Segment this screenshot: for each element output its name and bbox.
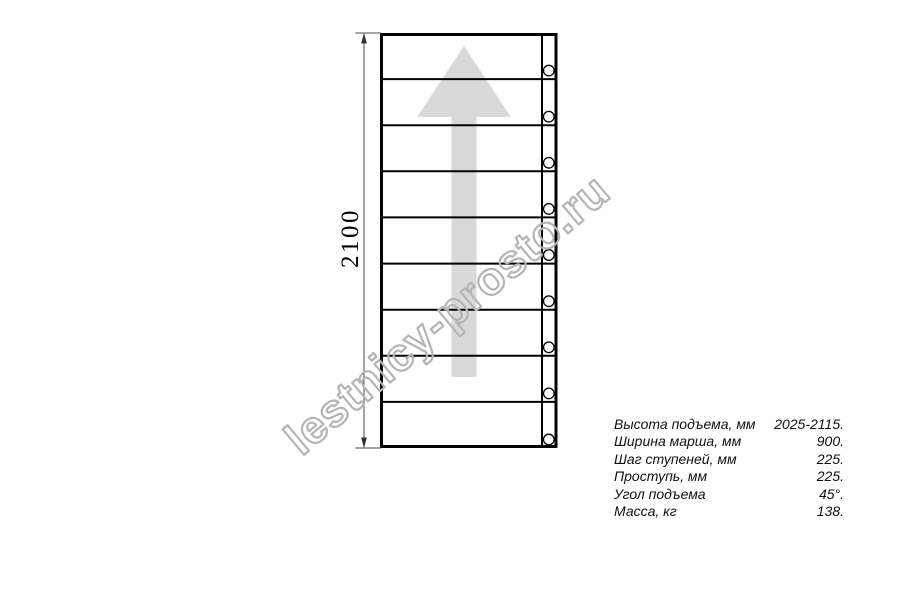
fastener-hole <box>544 434 555 445</box>
spec-value: 900. <box>817 433 844 450</box>
fastener-hole <box>544 342 555 353</box>
spec-row: Масса, кг 138. <box>614 503 844 520</box>
spec-value: 2025-2115. <box>774 416 844 433</box>
spec-row: Угол подъема 45°. <box>614 486 844 503</box>
spec-row: Ширина марша, мм 900. <box>614 433 844 450</box>
fastener-hole <box>544 296 555 307</box>
spec-value: 138. <box>817 503 844 520</box>
spec-label: Проступь, мм <box>614 468 707 485</box>
spec-value: 225. <box>817 468 844 485</box>
fastener-hole <box>544 388 555 399</box>
spec-label: Ширина марша, мм <box>614 433 741 450</box>
spec-label: Масса, кг <box>614 503 677 520</box>
spec-value: 45°. <box>819 486 844 503</box>
spec-row: Высота подъема, мм 2025-2115. <box>614 416 844 433</box>
fastener-hole <box>544 111 555 122</box>
spec-label: Шаг ступеней, мм <box>614 451 737 468</box>
spec-value: 225. <box>817 451 844 468</box>
specs-table: Высота подъема, мм 2025-2115. Ширина мар… <box>614 416 844 520</box>
dimension-label: 2100 <box>337 208 364 268</box>
dimension-arrowhead-down-icon <box>361 438 367 449</box>
spec-label: Угол подъема <box>614 486 706 503</box>
fastener-hole <box>544 158 555 169</box>
dimension-arrowhead-up-icon <box>361 33 367 44</box>
staircase-drawing-page: 2100 lestnicy-prosto.ru Высота подъема, … <box>0 0 900 600</box>
fastener-hole <box>544 65 555 76</box>
spec-row: Шаг ступеней, мм 225. <box>614 451 844 468</box>
spec-label: Высота подъема, мм <box>614 416 756 433</box>
watermark-text: lestnicy-prosto.ru <box>275 163 620 464</box>
spec-row: Проступь, мм 225. <box>614 468 844 485</box>
